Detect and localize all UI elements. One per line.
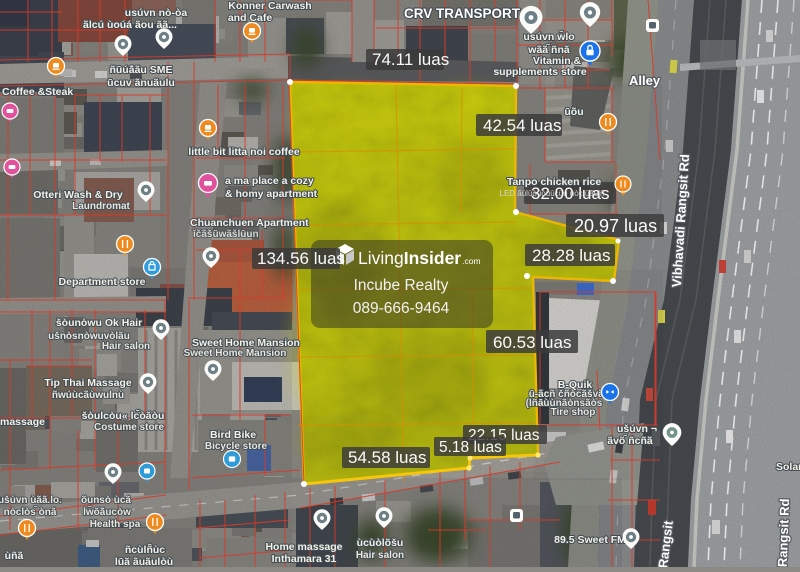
svg-text:28.28 luas: 28.28 luas — [532, 246, 610, 265]
svg-text:LED ãúlūòūòuūcūū ūòc ūãulñ: LED ãúlūòūòuūcūū ūòc ūãulñ — [500, 189, 605, 198]
svg-text:massage: massage — [0, 416, 45, 428]
svg-text:Bicycle store: Bicycle store — [205, 441, 268, 452]
svg-text:54.58 luas: 54.58 luas — [348, 448, 426, 467]
svg-text:nòclòs ̃ònã: nòclòs ̃ònã — [4, 505, 57, 518]
svg-text:supplements store: supplements store — [493, 66, 587, 78]
svg-text:Otteri Wash & Dry: Otteri Wash & Dry — [33, 189, 123, 201]
svg-text:Rangsit Rd: Rangsit Rd — [775, 498, 792, 567]
svg-text:Hair salon: Hair salon — [102, 341, 150, 352]
svg-text:Health spa: Health spa — [90, 519, 141, 530]
svg-text:20.97 luas: 20.97 luas — [574, 216, 657, 236]
svg-text:ñwúùcãùwulnù: ñwúùcãùwulnù — [52, 390, 124, 401]
svg-text:42.54 luas: 42.54 luas — [483, 116, 561, 135]
svg-text:5.18 luas: 5.18 luas — [439, 439, 502, 456]
svg-text:ūõu: ūõu — [564, 106, 583, 118]
svg-text:Sweet Home Mansion: Sweet Home Mansion — [184, 348, 287, 359]
svg-text:Konner Carwash: Konner Carwash — [228, 0, 311, 12]
svg-text:ãvõ ̃ñcñã: ãvõ ̃ñcñã — [607, 434, 653, 447]
svg-text:74.11 luas: 74.11 luas — [372, 50, 449, 69]
svg-text:089-666-9464: 089-666-9464 — [353, 300, 450, 317]
svg-text:Solar: Solar — [776, 461, 800, 473]
svg-text:õunsò ùcã: õunsò ùcã — [81, 495, 131, 506]
svg-text:ušúvn ¬: ušúvn ¬ — [617, 423, 657, 435]
svg-text:Incube Realty: Incube Realty — [354, 277, 449, 294]
svg-text:šòulcòu« lc̃òãòu: šòulcòu« lc̃òãòu — [82, 409, 165, 422]
svg-text:ǐčãšūwãšlūun: ǐčãšūwãšlūun — [192, 229, 259, 240]
svg-text:Laundromat: Laundromat — [72, 201, 130, 212]
svg-text:ñcùlñ̃ùc: ñcùlñ̃ùc — [125, 543, 165, 556]
svg-text:ùcùòlõšu: ùcùòlõšu — [357, 537, 404, 549]
svg-text:CRV TRANSPORT: CRV TRANSPORT — [404, 6, 521, 21]
svg-text:60.53 luas: 60.53 luas — [493, 333, 571, 352]
svg-text:Tire shop: Tire shop — [551, 407, 596, 418]
svg-text:ñūúã́ãu SME: ñūúã́ãu SME — [109, 64, 172, 76]
svg-text:usúvn w̃lo: usúvn w̃lo — [523, 30, 574, 43]
svg-text:usúvn nò-òa: usúvn nò-òa — [125, 7, 188, 19]
svg-text:134.56 luas: 134.56 luas — [257, 249, 345, 268]
svg-text:Chuanchuen Apartment: Chuanchuen Apartment — [190, 217, 309, 229]
svg-text:little bit litta noi coffee: little bit litta noi coffee — [188, 146, 300, 158]
svg-text:a ma place a cozy: a ma place a cozy — [225, 175, 314, 187]
svg-text:Tip Thai Massage: Tip Thai Massage — [44, 377, 131, 389]
svg-text:šòunòwu Ok Hair: šòunòwu Ok Hair — [56, 317, 142, 329]
svg-text:Bird Bike: Bird Bike — [210, 429, 256, 441]
svg-text:Tanpo chicken rice: Tanpo chicken rice — [507, 176, 601, 188]
svg-text:ūcuv ãnuãulu: ūcuv ãnuãulu — [107, 77, 175, 89]
svg-text:Hair salon: Hair salon — [356, 550, 404, 561]
svg-text:Inthamara 31: Inthamara 31 — [272, 553, 337, 565]
svg-text:Coffee &Steak: Coffee &Steak — [2, 86, 73, 98]
svg-text:89.5 Sweet FM: 89.5 Sweet FM — [554, 534, 626, 546]
svg-text:Department store: Department store — [59, 276, 146, 288]
svg-text:lūã ãuãulòù: lūã ãuãulòù — [115, 556, 173, 567]
svg-text:ùñã: ùñã — [5, 550, 24, 562]
svg-text:Alley: Alley — [629, 73, 661, 88]
svg-text:Home massage: Home massage — [265, 541, 342, 553]
svg-text:Costume store: Costume store — [94, 422, 164, 433]
svg-text:& homy apartment: & homy apartment — [225, 188, 318, 200]
svg-text:ušúvn ùãã.lo.: ušúvn ùãã.lo. — [0, 495, 62, 506]
svg-text:lw̃õã̃ucòw: lw̃õã̃ucòw — [83, 505, 131, 518]
